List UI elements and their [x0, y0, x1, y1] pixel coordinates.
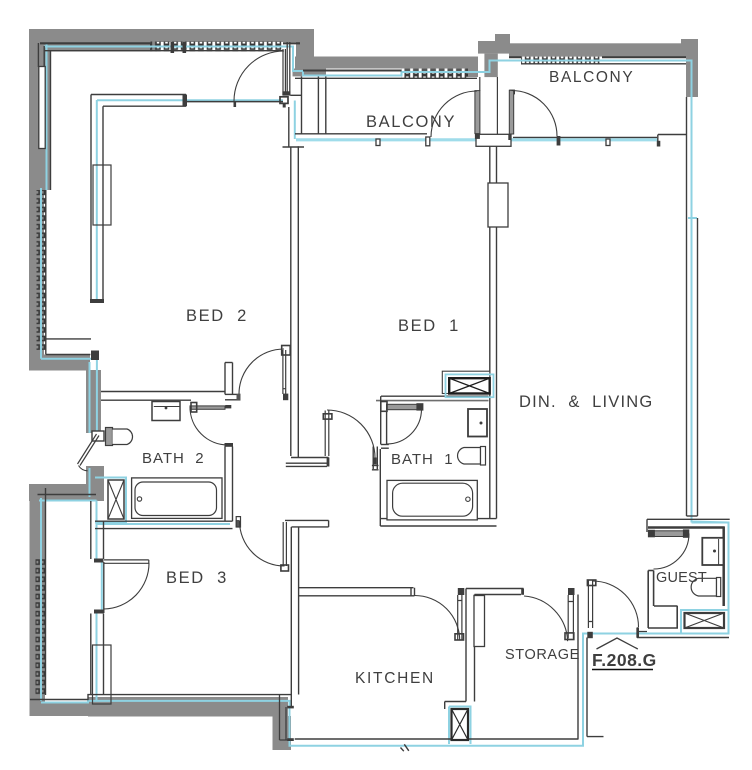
svg-text:BED 3: BED 3 — [166, 569, 228, 587]
svg-text:BED 2: BED 2 — [186, 307, 248, 325]
svg-text:BATH 2: BATH 2 — [142, 450, 205, 467]
svg-text:DIN. & LIVING: DIN. & LIVING — [519, 393, 653, 411]
svg-text:KITCHEN: KITCHEN — [355, 670, 435, 687]
svg-text:F.208.G: F.208.G — [592, 650, 657, 670]
svg-text:BALCONY: BALCONY — [549, 69, 634, 86]
svg-text:BED 1: BED 1 — [398, 317, 460, 335]
svg-text:BALCONY: BALCONY — [366, 113, 456, 131]
svg-text:STORAGE: STORAGE — [505, 647, 580, 663]
svg-text:BATH 1: BATH 1 — [391, 451, 454, 468]
svg-text:GUEST: GUEST — [656, 570, 707, 586]
